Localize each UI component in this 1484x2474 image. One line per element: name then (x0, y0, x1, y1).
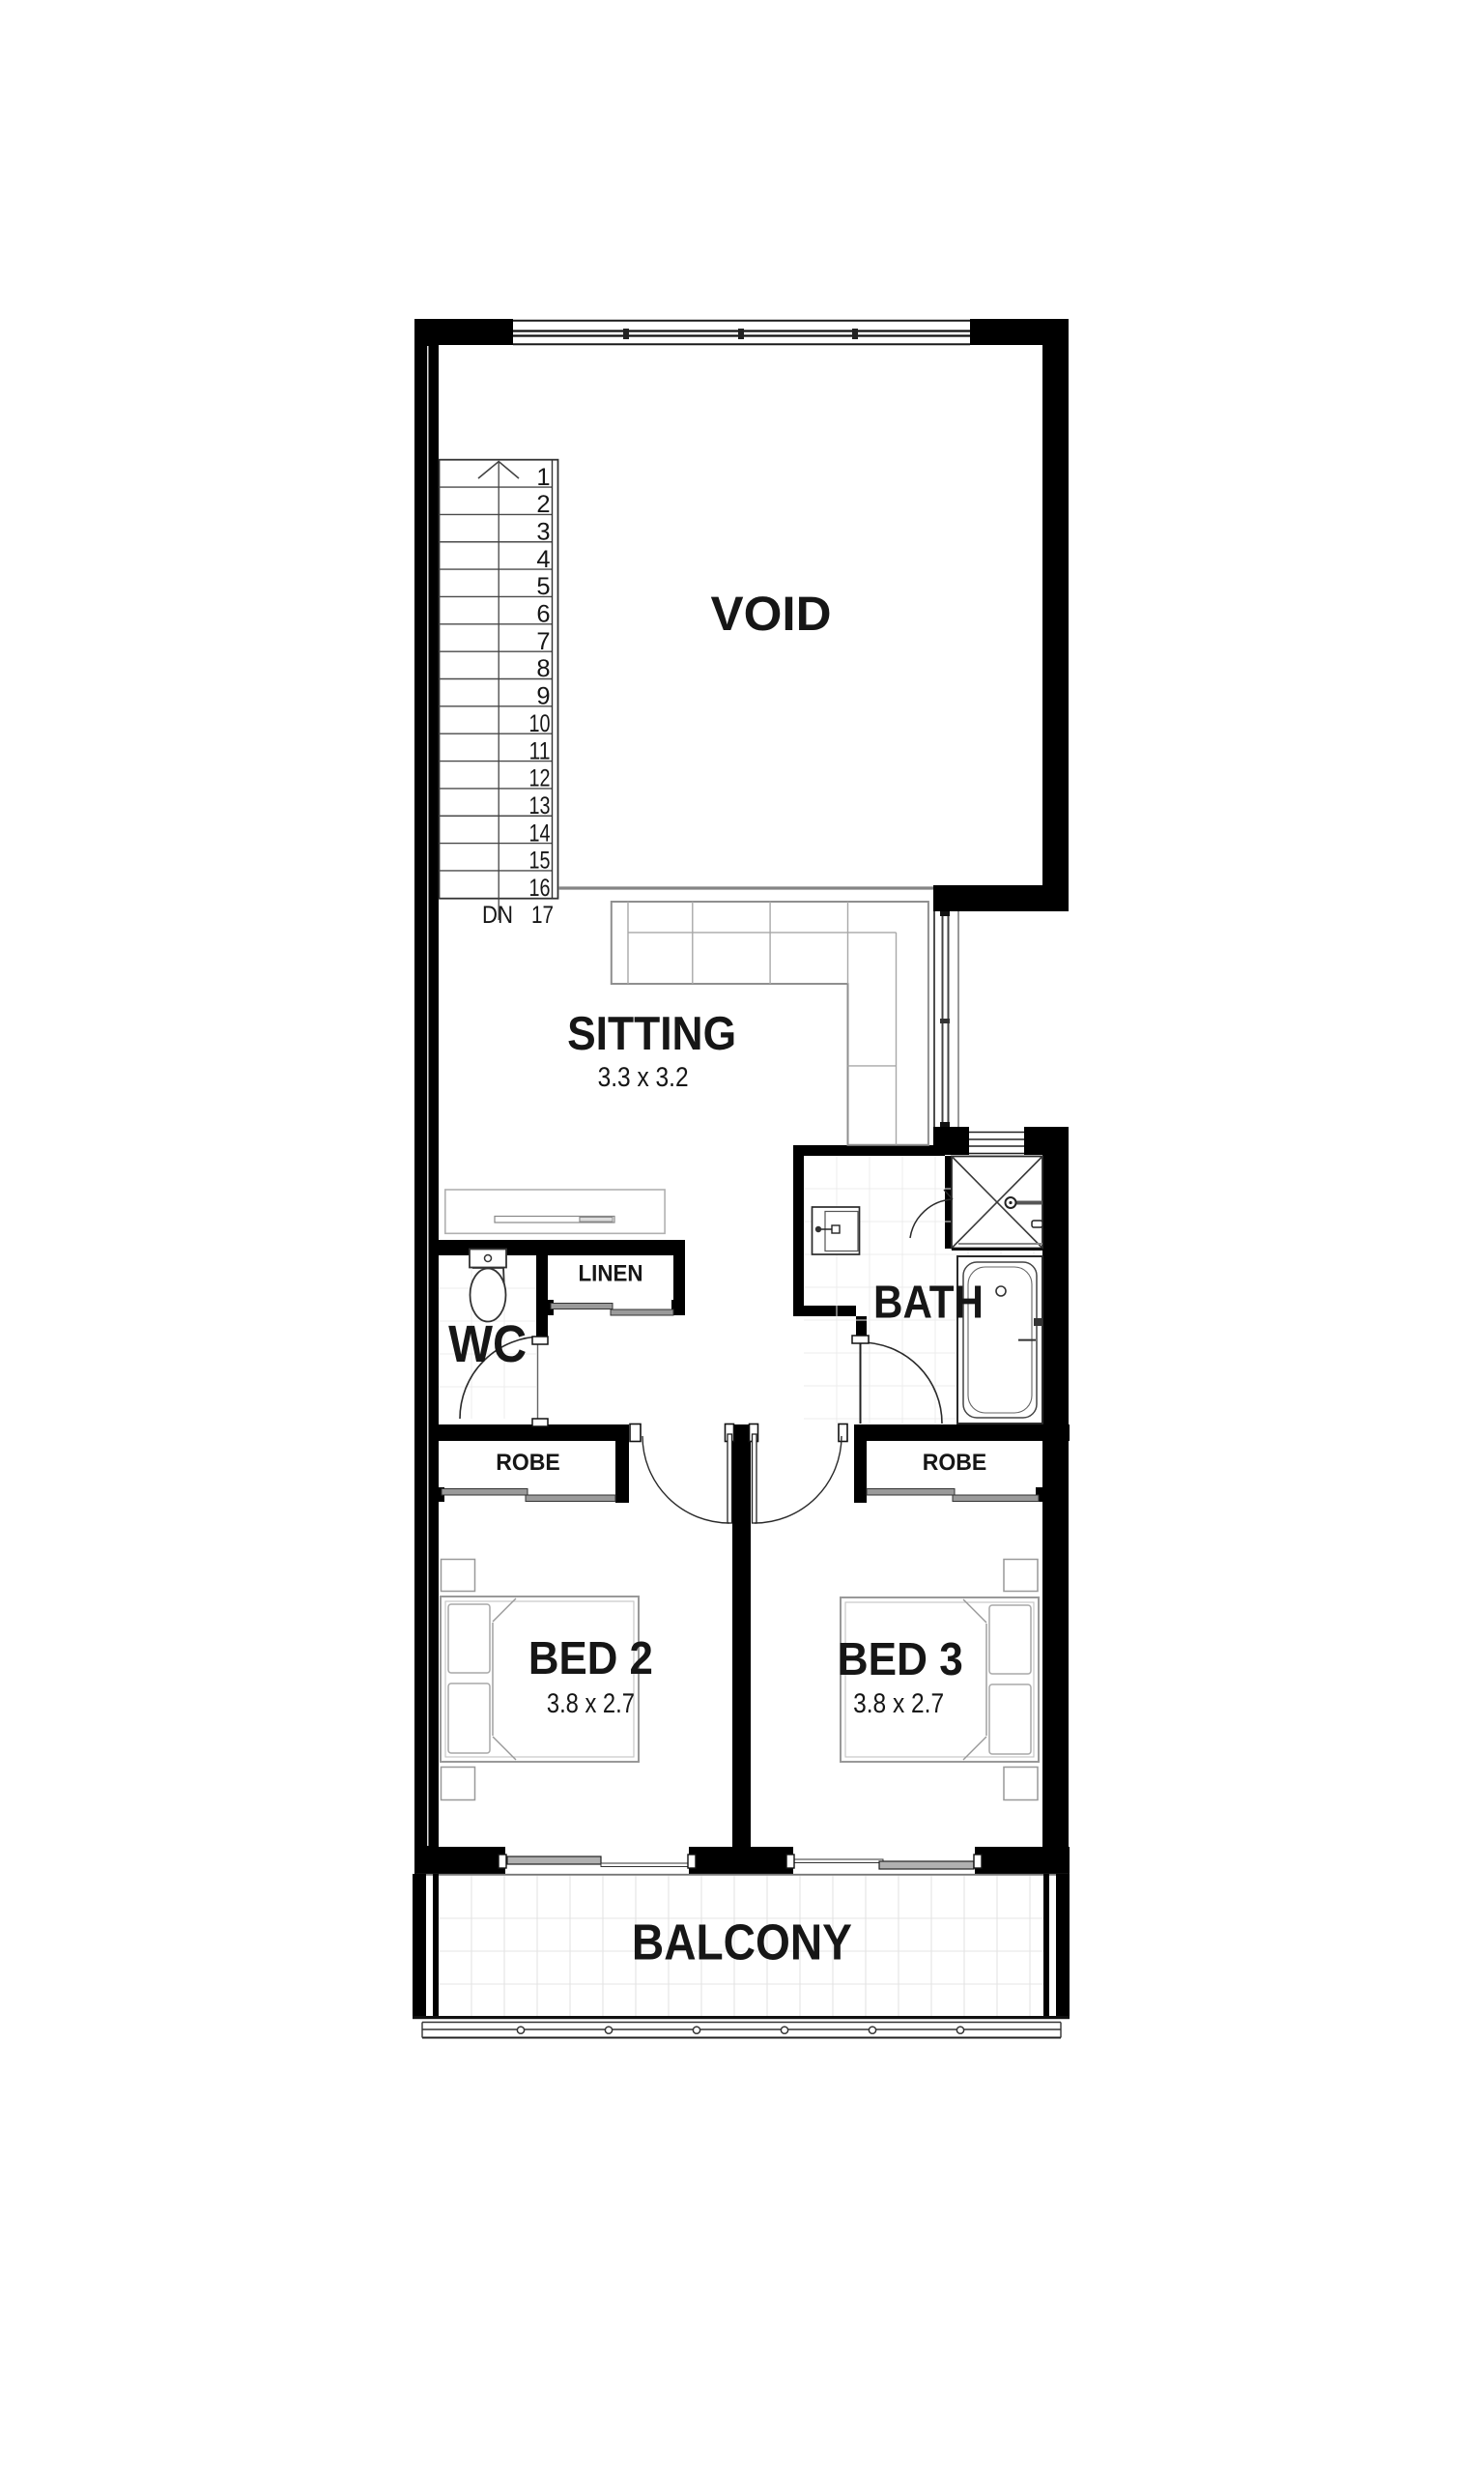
svg-text:11: 11 (529, 737, 551, 764)
svg-text:BATH: BATH (873, 1278, 984, 1329)
svg-text:14: 14 (529, 820, 551, 847)
svg-text:9: 9 (536, 683, 550, 710)
svg-text:10: 10 (529, 710, 551, 737)
svg-text:5: 5 (536, 573, 550, 600)
svg-text:6: 6 (536, 601, 550, 628)
svg-text:12: 12 (529, 765, 551, 792)
svg-text:3.3 x 3.2: 3.3 x 3.2 (598, 1062, 689, 1093)
svg-text:ROBE: ROBE (923, 1450, 987, 1476)
svg-text:BED 2: BED 2 (528, 1633, 653, 1684)
svg-text:17: 17 (531, 902, 554, 929)
svg-text:BED 3: BED 3 (838, 1634, 963, 1685)
svg-text:ROBE: ROBE (496, 1450, 560, 1476)
svg-text:3.8 x 2.7: 3.8 x 2.7 (853, 1688, 944, 1719)
svg-text:WC: WC (448, 1315, 527, 1373)
svg-text:SITTING: SITTING (567, 1008, 736, 1060)
svg-text:2: 2 (536, 491, 550, 518)
svg-text:8: 8 (536, 655, 550, 682)
svg-text:16: 16 (529, 875, 551, 902)
svg-text:3.8 x 2.7: 3.8 x 2.7 (547, 1688, 635, 1719)
svg-text:BALCONY: BALCONY (632, 1915, 852, 1971)
svg-text:15: 15 (529, 848, 551, 875)
svg-text:7: 7 (536, 628, 550, 655)
svg-text:3: 3 (536, 518, 550, 545)
svg-text:VOID: VOID (711, 587, 832, 641)
svg-text:LINEN: LINEN (579, 1261, 643, 1287)
svg-text:13: 13 (529, 792, 551, 820)
svg-text:1: 1 (536, 464, 550, 491)
svg-text:4: 4 (536, 546, 550, 573)
svg-text:DN: DN (482, 902, 513, 929)
